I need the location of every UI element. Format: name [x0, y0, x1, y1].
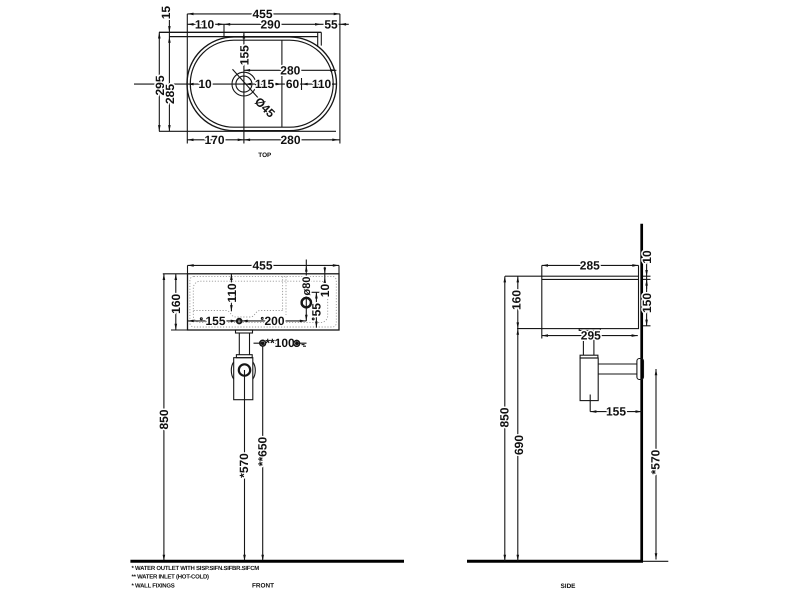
svg-text:850: 850 [157, 409, 171, 429]
svg-text:110: 110 [312, 77, 332, 91]
svg-text:110: 110 [195, 17, 215, 31]
svg-text:155: 155 [237, 45, 251, 65]
svg-text:Ø45: Ø45 [252, 95, 278, 121]
svg-text:** WATER INLET (HOT-COLD): ** WATER INLET (HOT-COLD) [132, 574, 210, 581]
svg-text:TOP: TOP [258, 152, 272, 159]
svg-text:280: 280 [280, 63, 300, 77]
svg-text:* WATER OUTLET WITH SISP.SIFN: * WATER OUTLET WITH SISP.SIFN.SIFBR.SIFC… [132, 565, 260, 572]
svg-text:10: 10 [640, 250, 654, 264]
svg-text:285: 285 [163, 84, 177, 104]
svg-text:SIDE: SIDE [561, 583, 577, 590]
svg-text:FRONT: FRONT [252, 583, 274, 590]
svg-text:200: 200 [264, 314, 284, 328]
svg-text:170: 170 [204, 133, 224, 147]
svg-text:60: 60 [286, 77, 300, 91]
svg-text:455: 455 [252, 258, 272, 272]
svg-text:55: 55 [324, 17, 338, 31]
svg-text:* WALL FIXINGS: * WALL FIXINGS [132, 583, 175, 590]
svg-text:160: 160 [169, 293, 183, 313]
svg-text:115: 115 [255, 77, 275, 91]
svg-text:ø80: ø80 [301, 277, 313, 296]
svg-text:110: 110 [225, 283, 239, 303]
svg-text:290: 290 [260, 17, 280, 31]
svg-text:155: 155 [205, 314, 225, 328]
svg-text:160: 160 [510, 290, 524, 310]
svg-text:*570: *570 [237, 453, 251, 478]
svg-text:280: 280 [280, 133, 300, 147]
svg-text:295: 295 [581, 329, 601, 343]
svg-text:850: 850 [498, 407, 512, 427]
svg-text:10: 10 [198, 77, 212, 91]
svg-text:15: 15 [159, 6, 173, 20]
svg-text:10: 10 [318, 284, 332, 298]
svg-text:**100: **100 [265, 336, 295, 350]
svg-text:690: 690 [512, 435, 526, 455]
svg-text:*570: *570 [649, 449, 663, 474]
svg-text:285: 285 [580, 258, 600, 272]
svg-text:155: 155 [606, 405, 626, 419]
svg-text:150: 150 [640, 293, 654, 313]
svg-text:**650: **650 [255, 437, 269, 467]
